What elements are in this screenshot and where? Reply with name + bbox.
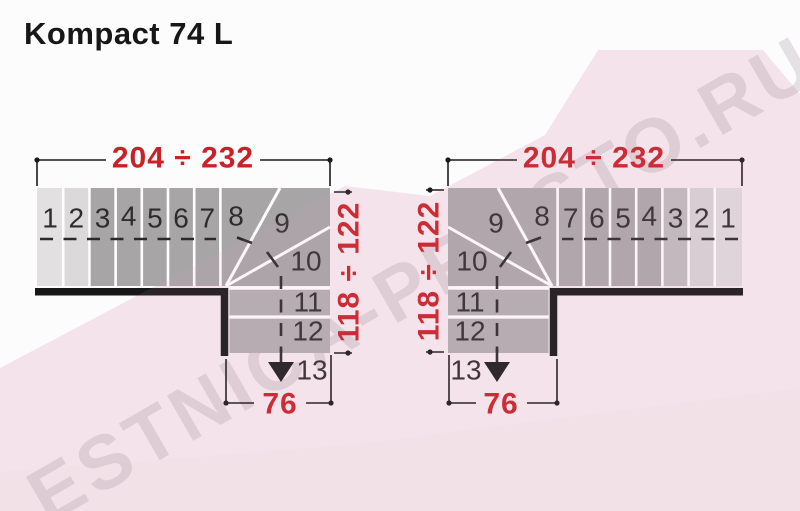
- step-number: 5: [147, 203, 163, 234]
- stair-plan-diagram: LESTNICA-PROSTO.RU: [0, 0, 800, 511]
- dimension-dot: [427, 187, 432, 192]
- step-number: 4: [121, 201, 137, 232]
- dimension-dot: [445, 157, 450, 162]
- step-number: 3: [95, 203, 111, 234]
- width-dimension: 204 ÷ 232: [34, 142, 332, 187]
- step-number: 6: [173, 203, 189, 234]
- step-number: 2: [69, 203, 85, 234]
- width-dimension-label: 204 ÷ 232: [112, 142, 254, 175]
- step-number: 8: [228, 201, 244, 232]
- dimension-dot: [34, 157, 39, 162]
- step-number: 7: [200, 203, 216, 234]
- dimension-dot: [327, 157, 332, 162]
- step-number: 1: [42, 203, 58, 234]
- stair-drawing-page: Kompact 74 L LESTNICA-PROSTO.RU: [0, 0, 800, 511]
